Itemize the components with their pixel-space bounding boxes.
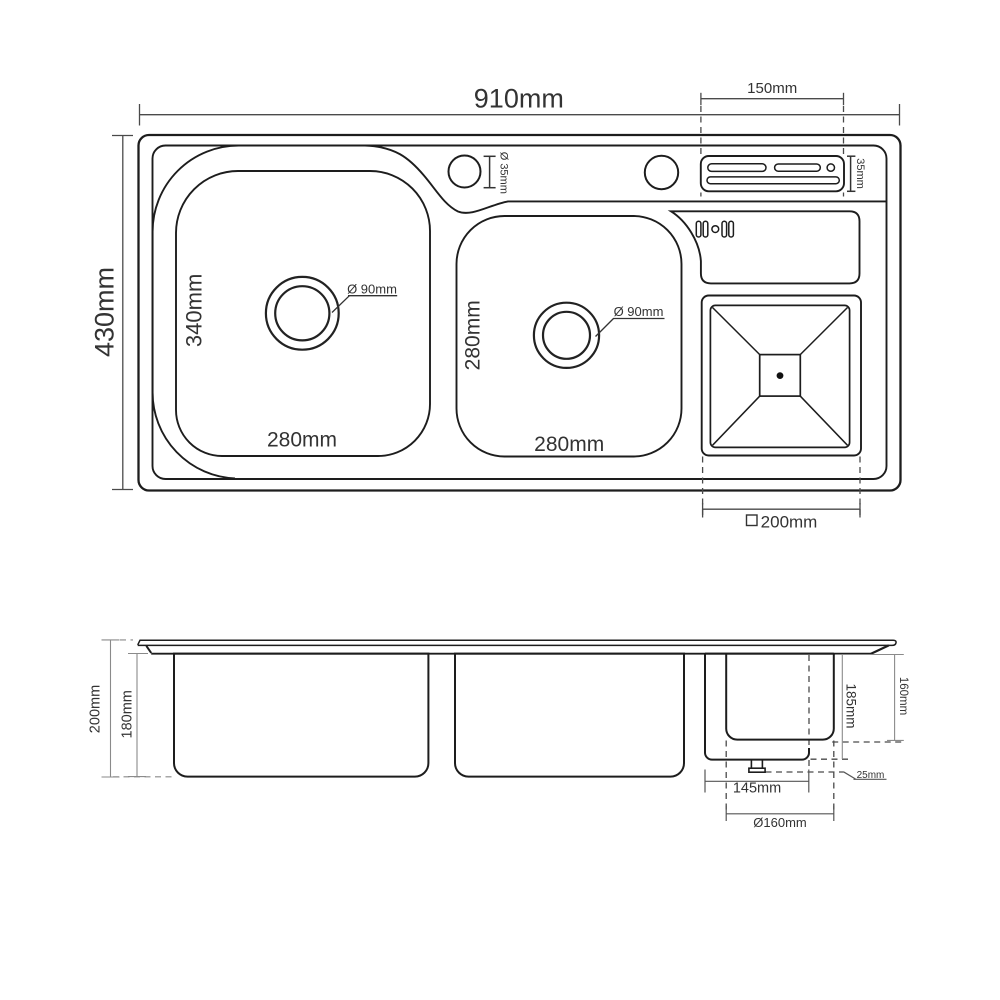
svg-text:200mm: 200mm [88,685,104,733]
svg-text:Ø 90mm: Ø 90mm [347,282,397,297]
svg-text:25mm: 25mm [857,770,885,781]
svg-text:35mm: 35mm [854,158,866,189]
svg-text:185mm: 185mm [844,683,859,728]
svg-text:180mm: 180mm [120,690,136,738]
svg-text:160mm: 160mm [897,677,909,715]
svg-text:430mm: 430mm [89,267,119,357]
svg-text:145mm: 145mm [733,781,781,797]
svg-text:Ø 35mm: Ø 35mm [497,152,509,194]
svg-text:Ø160mm: Ø160mm [753,815,806,830]
svg-text:280mm: 280mm [534,433,604,456]
svg-text:150mm: 150mm [747,80,797,97]
svg-text:Ø 90mm: Ø 90mm [614,304,664,319]
svg-text:280mm: 280mm [267,429,337,452]
svg-text:280mm: 280mm [462,300,485,370]
svg-text:340mm: 340mm [181,274,206,347]
svg-text:910mm: 910mm [474,84,564,114]
svg-text:200mm: 200mm [761,512,818,531]
